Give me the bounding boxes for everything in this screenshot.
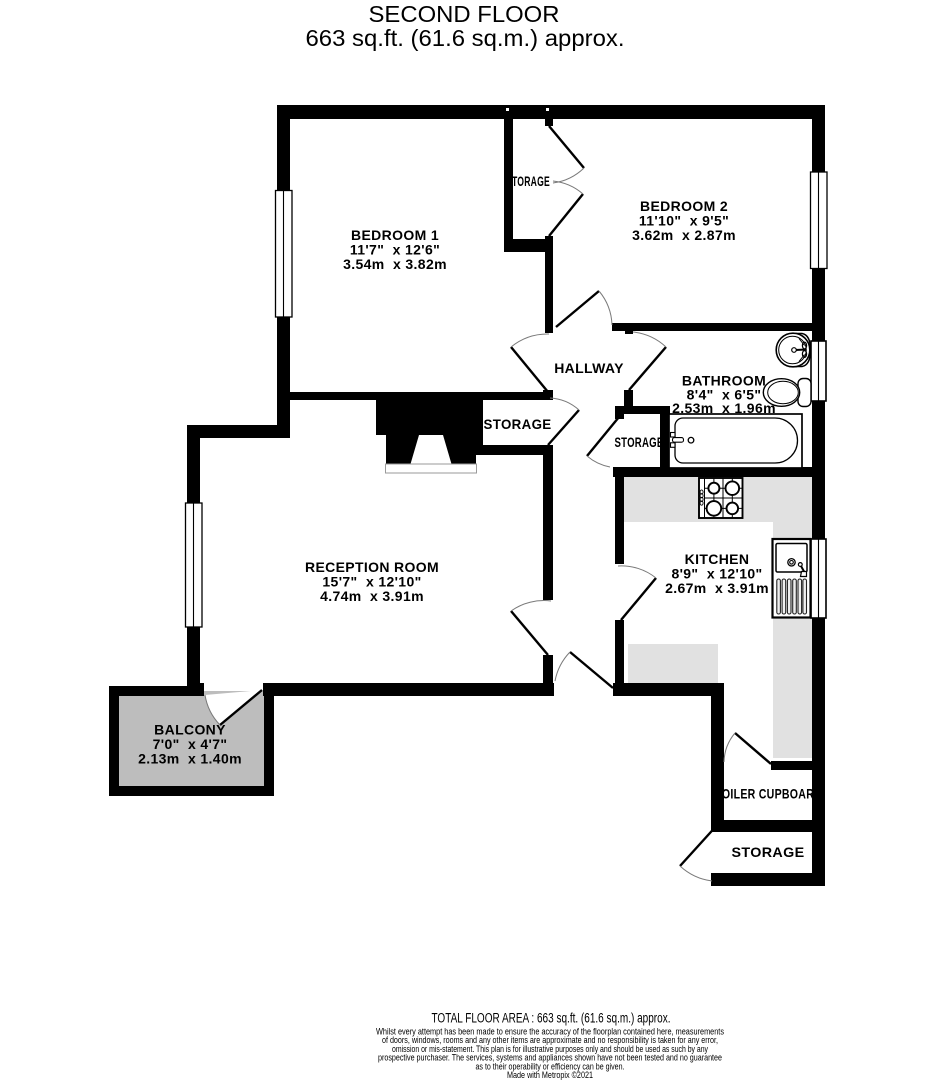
svg-text:3.54m x 3.82m: 3.54m x 3.82m [343,256,447,272]
svg-text:Made with Metropix ©2021: Made with Metropix ©2021 [507,1070,593,1080]
svg-text:TOTAL FLOOR AREA : 663 sq.ft.: TOTAL FLOOR AREA : 663 sq.ft. (61.6 sq.m… [432,1011,671,1026]
svg-text:663 sq.ft. (61.6 sq.m.) approx: 663 sq.ft. (61.6 sq.m.) approx. [306,25,625,51]
svg-text:3.62m x 2.87m: 3.62m x 2.87m [632,227,736,243]
svg-text:2.13m x 1.40m: 2.13m x 1.40m [138,751,242,767]
svg-text:STORAGE: STORAGE [732,844,805,860]
svg-text:2.53m x 1.96m: 2.53m x 1.96m [672,400,776,416]
svg-text:SECOND FLOOR: SECOND FLOOR [369,1,560,27]
svg-text:4.74m x 3.91m: 4.74m x 3.91m [320,588,424,604]
svg-text:BOILER CUPBOARD: BOILER CUPBOARD [714,786,822,802]
svg-text:STORAGE: STORAGE [615,434,664,450]
svg-text:2.67m x 3.91m: 2.67m x 3.91m [665,580,769,596]
svg-text:HALLWAY: HALLWAY [554,360,624,376]
svg-text:STORAGE: STORAGE [484,416,552,432]
